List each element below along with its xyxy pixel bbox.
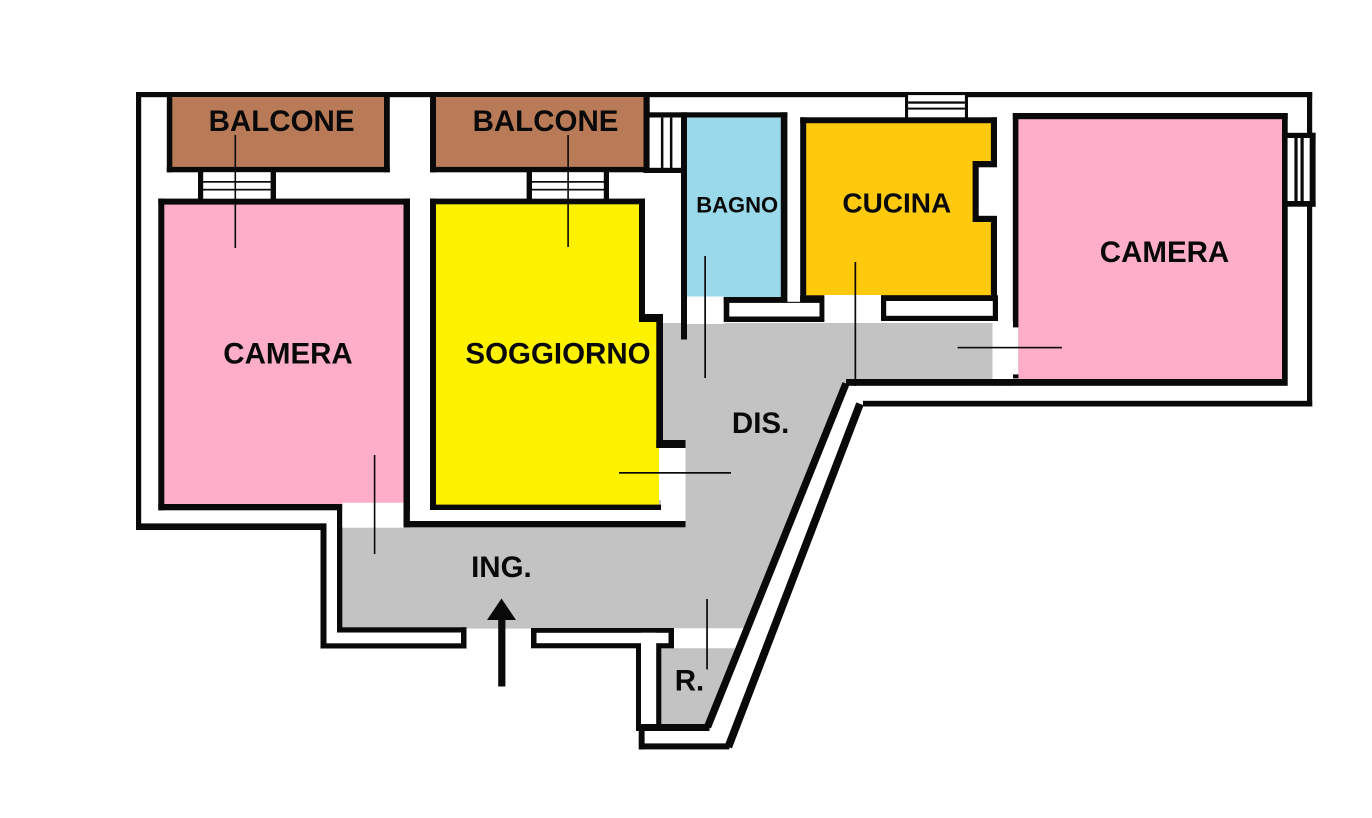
svg-text:DIS.: DIS.	[732, 407, 789, 440]
svg-text:R.: R.	[675, 665, 705, 698]
svg-text:BALCONE: BALCONE	[473, 105, 619, 138]
svg-text:BAGNO: BAGNO	[696, 193, 778, 218]
svg-text:BALCONE: BALCONE	[209, 105, 355, 138]
svg-text:CUCINA: CUCINA	[842, 188, 951, 219]
svg-text:CAMERA: CAMERA	[223, 338, 352, 371]
svg-text:ING.: ING.	[471, 551, 532, 584]
svg-text:CAMERA: CAMERA	[1100, 236, 1229, 269]
svg-text:SOGGIORNO: SOGGIORNO	[465, 338, 650, 371]
